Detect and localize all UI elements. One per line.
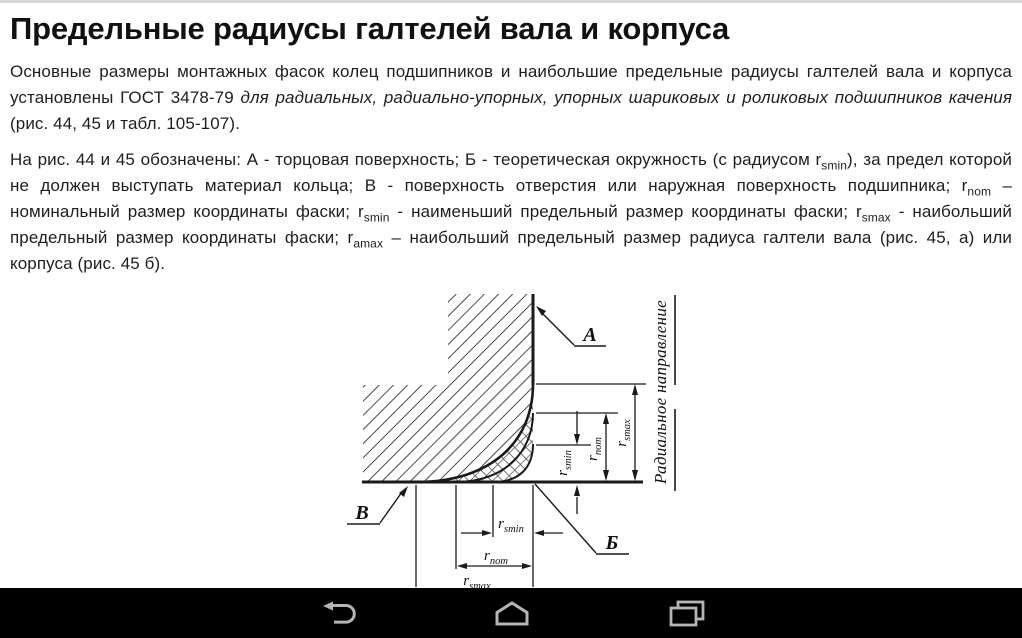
extension-lines bbox=[416, 384, 646, 587]
dim-label-rsmin-vertical: rsmin bbox=[555, 450, 574, 476]
dim-label-rnom-vertical: rnom bbox=[585, 437, 604, 461]
dimension-rnom-horizontal: rnom bbox=[457, 548, 532, 569]
radial-direction-annotation: Радиальное направление bbox=[651, 295, 675, 491]
android-navbar bbox=[0, 588, 1022, 638]
paragraph-2: На рис. 44 и 45 обозначены: А - торцовая… bbox=[10, 147, 1012, 277]
label-v: В bbox=[354, 502, 368, 524]
article: Предельные радиусы галтелей вала и корпу… bbox=[10, 3, 1012, 287]
dimension-rsmin-vertical: rsmin bbox=[555, 411, 580, 514]
recents-icon bbox=[669, 600, 705, 627]
fillet-tolerance-zone bbox=[416, 384, 533, 482]
fillet-arc-rsmin bbox=[493, 444, 533, 482]
dim-label-rsmax-vertical: rsmax bbox=[614, 419, 633, 447]
fillet-arc-rsmax bbox=[416, 384, 533, 482]
recents-button[interactable] bbox=[660, 588, 714, 638]
dimension-rsmin-horizontal: rsmin bbox=[461, 516, 563, 536]
callout-b: Б bbox=[535, 484, 629, 554]
dimension-rsmax-vertical: rsmax bbox=[614, 384, 638, 481]
callout-v: В bbox=[347, 486, 408, 524]
radial-direction-label: Радиальное направление bbox=[651, 300, 670, 485]
callout-a: А bbox=[536, 306, 606, 346]
dim-label-rnom-horizontal: rnom bbox=[484, 548, 508, 567]
back-icon bbox=[321, 601, 359, 625]
home-icon bbox=[493, 601, 531, 626]
page-title: Предельные радиусы галтелей вала и корпу… bbox=[10, 12, 1012, 46]
dimension-rnom-vertical: rnom bbox=[585, 413, 609, 481]
dim-label-rsmin-horizontal: rsmin bbox=[498, 516, 524, 535]
back-button[interactable] bbox=[313, 588, 367, 638]
body-outline bbox=[362, 294, 643, 482]
label-a: А bbox=[581, 324, 596, 346]
label-b: Б bbox=[605, 532, 619, 554]
tablet-screen: Предельные радиусы галтелей вала и корпу… bbox=[0, 0, 1022, 638]
paragraph-1: Основные размеры монтажных фасок колец п… bbox=[10, 59, 1012, 137]
hatched-body bbox=[363, 294, 533, 482]
home-button[interactable] bbox=[485, 588, 539, 638]
fillet-arc-rnom bbox=[456, 413, 533, 482]
